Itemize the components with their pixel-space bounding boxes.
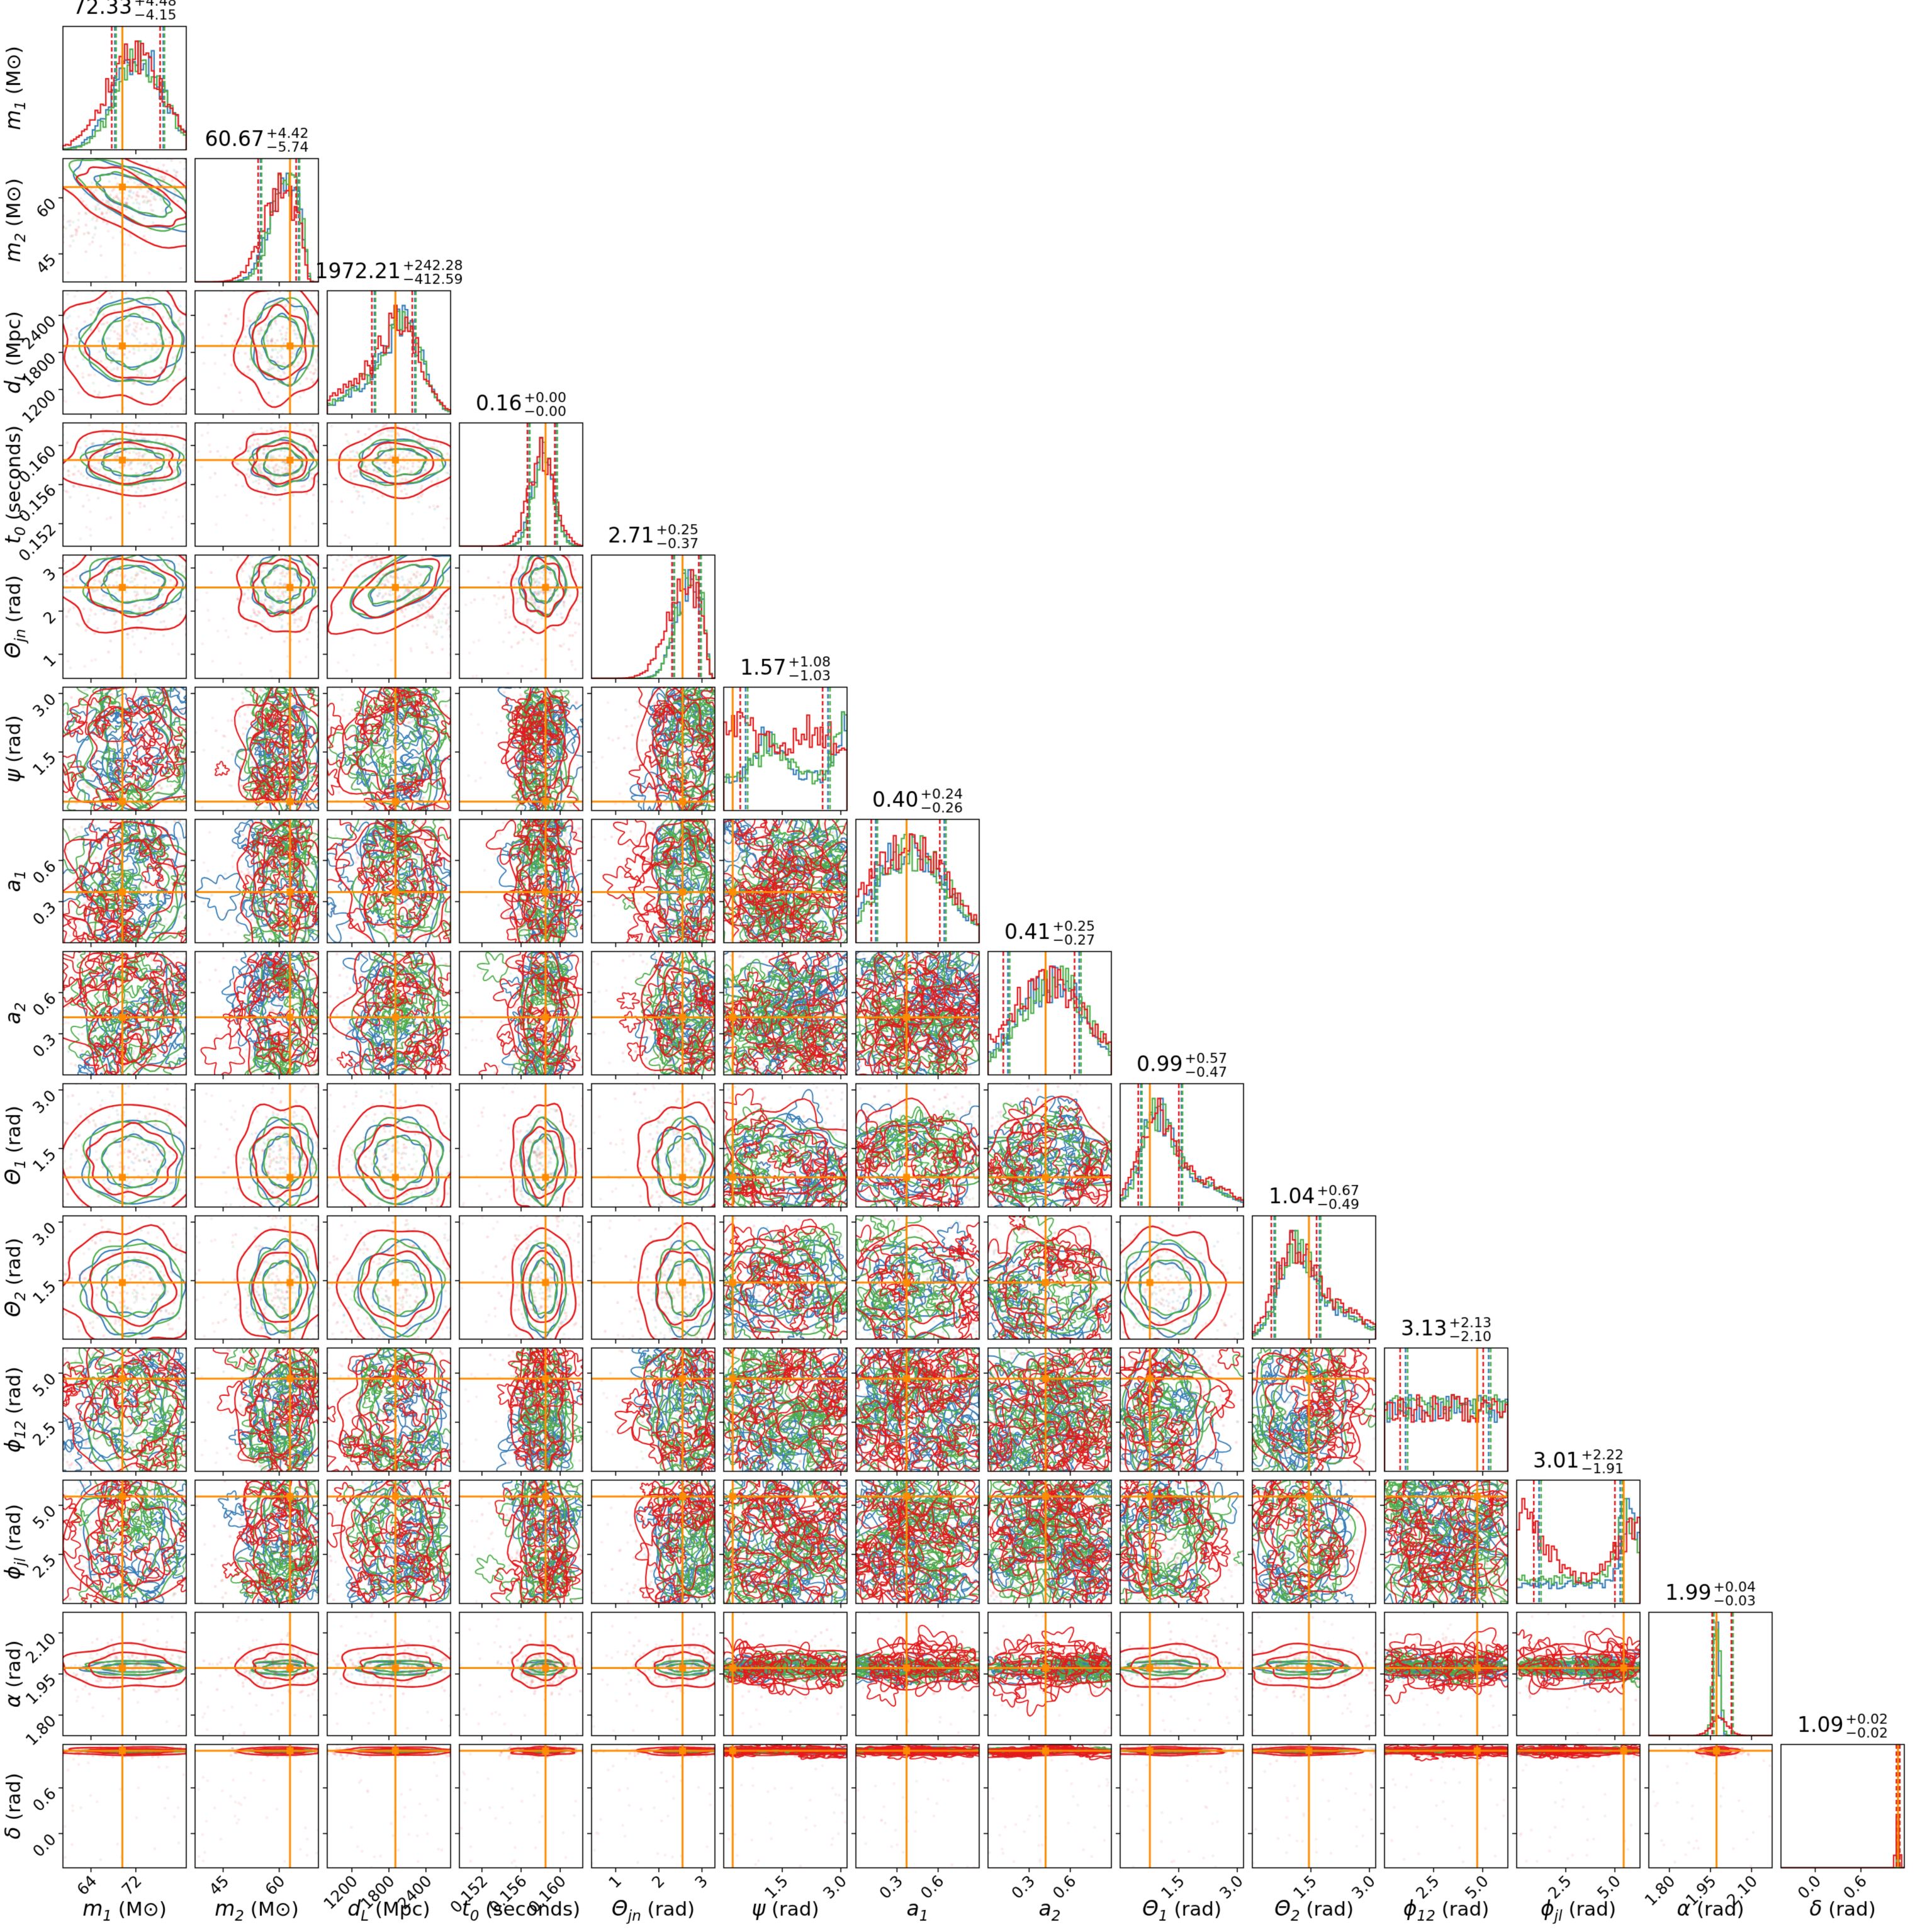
- corner-plot-figure: [0, 0, 1932, 1932]
- corner-plot-canvas: [0, 0, 1932, 1932]
